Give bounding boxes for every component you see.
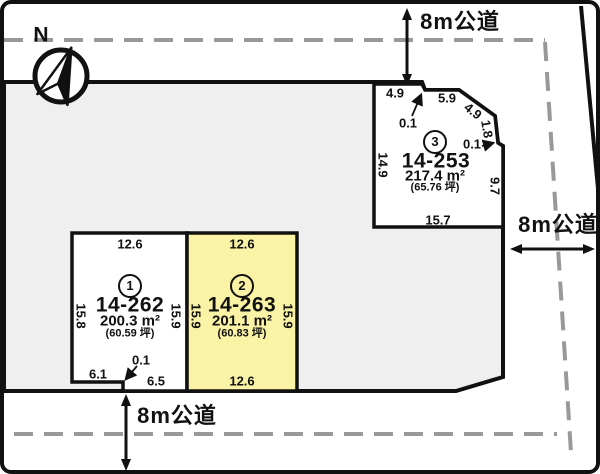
north-label: N: [33, 25, 48, 46]
plot1-dim-bottom-right: 6.5: [147, 375, 165, 388]
top-road-width-arrow: [402, 8, 412, 86]
plot3-dim-bottom: 15.7: [425, 214, 450, 227]
plot3-dim-right1: 1.8: [479, 119, 495, 139]
plan-drawing: [4, 4, 600, 474]
plot2-dim-top: 12.6: [229, 238, 254, 251]
north-compass-icon: [35, 42, 87, 105]
plot1-dim-right: 15.9: [170, 303, 183, 328]
map-frame: N 8m公道 8m公道 8m公道 12.6 15.8 15.9 1 14-262…: [0, 0, 600, 474]
plot1-area-m2: 200.3 m²: [100, 314, 160, 329]
right-road-label: 8m公道: [518, 214, 598, 236]
plot1-dim-step: 0.1: [132, 354, 150, 367]
plot1-area-tsubo: (60.59 坪): [106, 329, 155, 340]
plot3-area-tsubo: (65.76 坪): [411, 183, 460, 194]
east-boundary-line: [581, 6, 600, 210]
plot2-area-tsubo: (60.83 坪): [218, 329, 267, 340]
plot3-dim-top1: 4.9: [386, 87, 404, 100]
plot3-dim-top2: 5.9: [438, 92, 456, 105]
right-road-width-arrow: [510, 244, 595, 254]
plot2-dim-right: 15.9: [282, 303, 295, 328]
bottom-road-label: 8m公道: [137, 405, 217, 427]
site-plan-map: N 8m公道 8m公道 8m公道 12.6 15.8 15.9 1 14-262…: [0, 0, 600, 474]
plot2-dim-bottom: 12.6: [229, 375, 254, 388]
plot1-dim-top: 12.6: [117, 238, 142, 251]
plot2-dim-left: 15.9: [190, 303, 203, 328]
top-road-label: 8m公道: [420, 11, 500, 33]
plot1-dim-bottom-left: 6.1: [89, 368, 107, 381]
plot3-dim-step-top: 0.1: [399, 117, 417, 130]
plot1-dim-left: 15.8: [75, 303, 88, 328]
plot3-dim-left: 14.9: [377, 152, 390, 177]
plot2-area-m2: 201.1 m²: [212, 314, 272, 329]
plot3-dim-right2: 9.7: [489, 177, 502, 195]
